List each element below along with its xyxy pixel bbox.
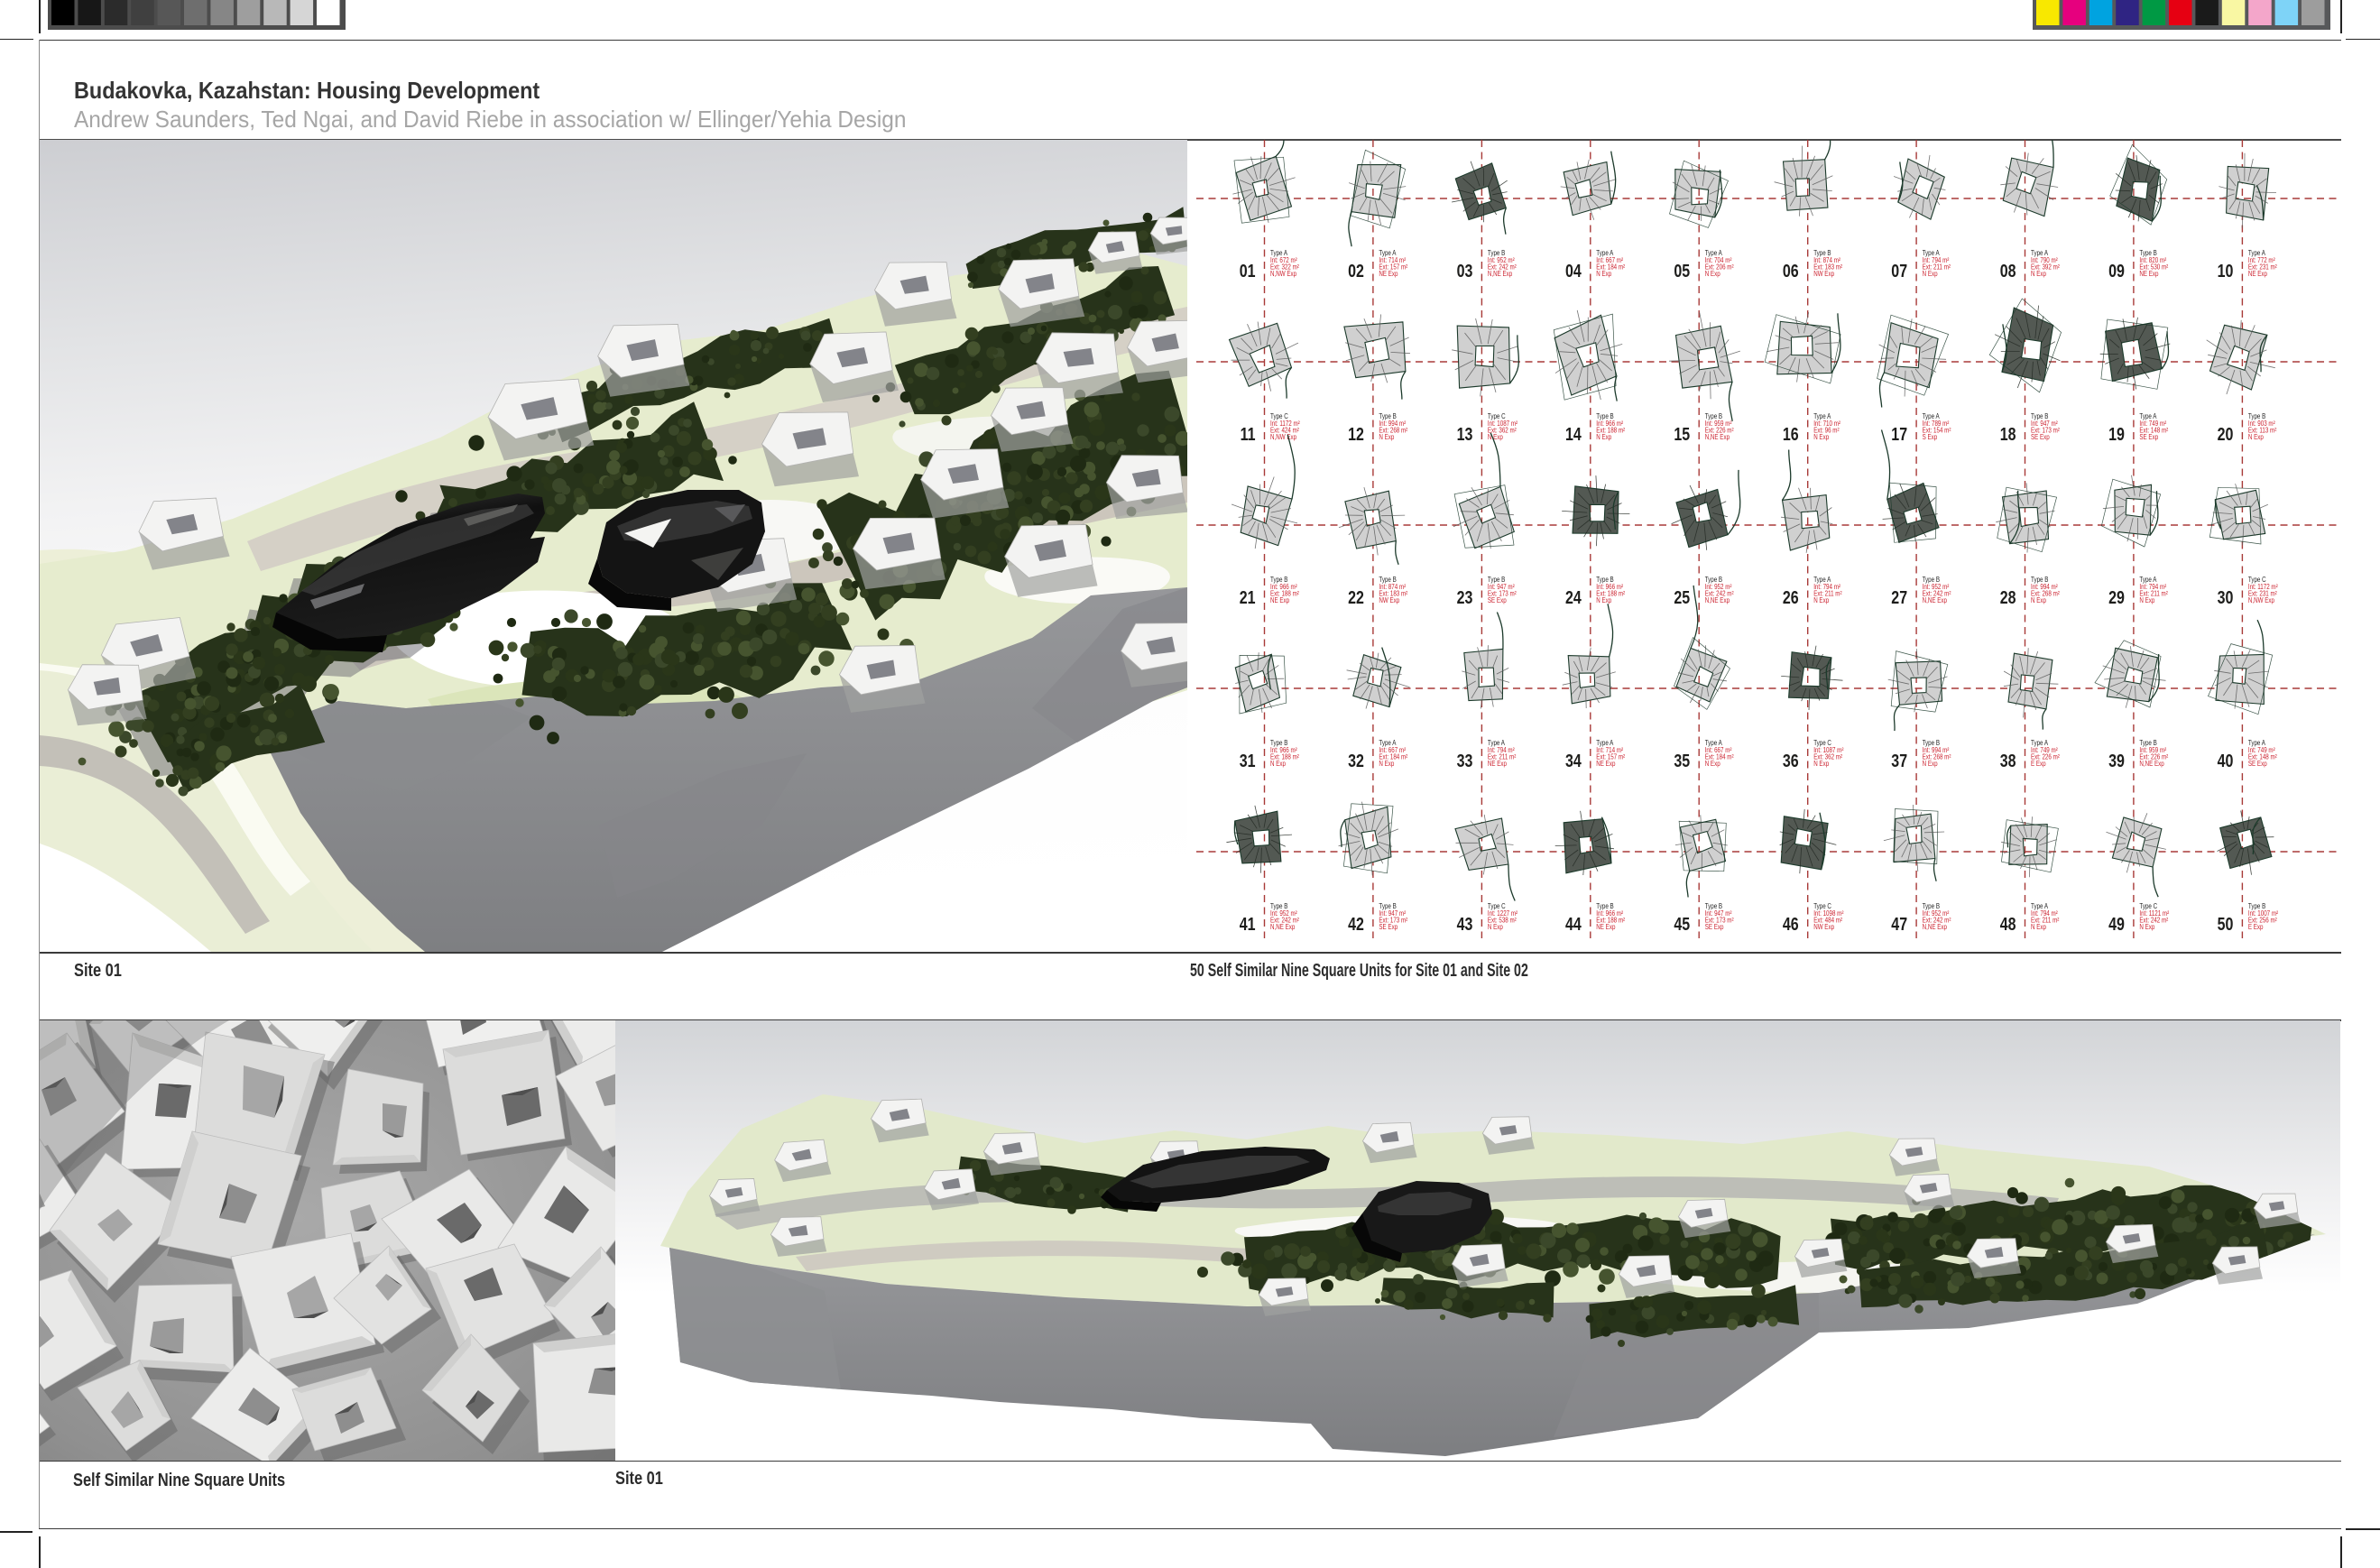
svg-text:Ext: 211 m²: Ext: 211 m² [2139,591,2168,598]
svg-text:SE Exp: SE Exp [1379,925,1398,932]
svg-text:Ext: 268 m²: Ext: 268 m² [1923,754,1951,761]
svg-text:Int: 749 m²: Int: 749 m² [2031,747,2058,754]
svg-text:Type B: Type B [1270,903,1288,910]
svg-text:Int: 966 m²: Int: 966 m² [1596,584,1623,591]
svg-text:Type A: Type A [1813,413,1831,420]
svg-text:N Exp: N Exp [1705,761,1720,769]
svg-text:N,NE Exp: N,NE Exp [1923,598,1947,605]
svg-text:32: 32 [1348,751,1364,770]
svg-text:N Exp: N Exp [2139,598,2154,605]
svg-text:N Exp: N Exp [1705,272,1720,279]
svg-text:Ext: 157 m²: Ext: 157 m² [1596,754,1625,761]
svg-text:N Exp: N Exp [2031,272,2046,279]
svg-text:Ext: 183 m²: Ext: 183 m² [1379,591,1407,598]
svg-text:31: 31 [1240,751,1256,770]
svg-text:NE Exp: NE Exp [1270,598,1289,605]
svg-text:Int: 1007 m²: Int: 1007 m² [2248,910,2279,918]
svg-text:Int: 1172 m²: Int: 1172 m² [1270,420,1300,428]
svg-text:SE Exp: SE Exp [1488,598,1507,605]
svg-text:N Exp: N Exp [1813,598,1829,605]
svg-text:Int: 1087 m²: Int: 1087 m² [1813,747,1844,754]
svg-text:Ext: 242 m²: Ext: 242 m² [1270,918,1299,925]
svg-text:NE Exp: NE Exp [1379,272,1398,279]
svg-text:Int: 749 m²: Int: 749 m² [2139,420,2166,428]
svg-text:NE Exp: NE Exp [1596,925,1615,932]
svg-text:N,NE Exp: N,NE Exp [1705,598,1730,605]
svg-text:Int: 952 m²: Int: 952 m² [1923,584,1950,591]
svg-text:09: 09 [2108,261,2125,281]
svg-text:10: 10 [2218,261,2234,281]
svg-text:45: 45 [1674,914,1690,934]
svg-text:Int: 820 m²: Int: 820 m² [2139,257,2166,264]
svg-text:37: 37 [1891,751,1907,770]
svg-text:30: 30 [2218,587,2234,607]
svg-text:Ext: 173 m²: Ext: 173 m² [2031,428,2060,435]
svg-text:N Exp: N Exp [2031,598,2046,605]
svg-text:22: 22 [1348,587,1364,607]
svg-text:Type C: Type C [1488,903,1506,910]
svg-text:Ext: 184 m²: Ext: 184 m² [1705,754,1734,761]
svg-text:NE Exp: NE Exp [1488,761,1507,769]
svg-text:Int: 667 m²: Int: 667 m² [1379,747,1406,754]
svg-text:NE Exp: NE Exp [2248,272,2267,279]
svg-text:Type A: Type A [1596,250,1613,257]
svg-text:41: 41 [1240,914,1256,934]
svg-text:46: 46 [1783,914,1799,934]
svg-text:42: 42 [1348,914,1364,934]
svg-text:Ext: 242 m²: Ext: 242 m² [1705,591,1734,598]
svg-text:Int: 714 m²: Int: 714 m² [1379,257,1406,264]
svg-text:Type A: Type A [1488,740,1505,747]
svg-text:N,NE Exp: N,NE Exp [1488,272,1512,279]
svg-text:SE Exp: SE Exp [2031,435,2050,442]
svg-text:18: 18 [2000,424,2016,444]
svg-text:Ext: 424 m²: Ext: 424 m² [1270,428,1299,435]
svg-text:Int: 994 m²: Int: 994 m² [1379,420,1406,428]
svg-text:Type A: Type A [2248,740,2265,747]
svg-text:Int: 952 m²: Int: 952 m² [1705,584,1732,591]
svg-text:Ext: 226 m²: Ext: 226 m² [2139,754,2168,761]
svg-text:Type C: Type C [1813,740,1831,747]
svg-text:Int: 966 m²: Int: 966 m² [1270,584,1297,591]
svg-text:50: 50 [2218,914,2234,934]
svg-text:Type A: Type A [2031,250,2048,257]
svg-text:Int: 749 m²: Int: 749 m² [2248,747,2275,754]
svg-text:Int: 794 m²: Int: 794 m² [2031,910,2058,918]
svg-text:Ext: 538 m²: Ext: 538 m² [1488,918,1517,925]
svg-text:Ext: 392 m²: Ext: 392 m² [2031,264,2060,272]
svg-text:16: 16 [1783,424,1799,444]
svg-text:NW Exp: NW Exp [1813,925,1834,932]
svg-text:N Exp: N Exp [1813,761,1829,769]
svg-text:49: 49 [2108,914,2125,934]
svg-text:Ext: 184 m²: Ext: 184 m² [1596,264,1625,272]
svg-text:Int: 874 m²: Int: 874 m² [1379,584,1406,591]
svg-text:Ext: 188 m²: Ext: 188 m² [1596,918,1625,925]
svg-text:Ext: 211 m²: Ext: 211 m² [1488,754,1517,761]
svg-text:Type B: Type B [1923,576,1941,584]
svg-text:Type B: Type B [1379,903,1397,910]
svg-text:40: 40 [2218,751,2234,770]
svg-text:Type C: Type C [2139,903,2157,910]
svg-text:Ext: 242 m²: Ext: 242 m² [2139,918,2168,925]
svg-text:Int: 959 m²: Int: 959 m² [2139,747,2166,754]
svg-text:Int: 1087 m²: Int: 1087 m² [1488,420,1518,428]
svg-text:04: 04 [1565,261,1582,281]
svg-text:Type B: Type B [1705,576,1723,584]
svg-text:Type B: Type B [2139,250,2157,257]
svg-text:N Exp: N Exp [1923,272,1938,279]
svg-text:Type B: Type B [1379,413,1397,420]
svg-text:Type C: Type C [1270,413,1288,420]
svg-text:Ext: 530 m²: Ext: 530 m² [2139,264,2168,272]
svg-text:Type B: Type B [1596,413,1614,420]
svg-text:Type B: Type B [1488,250,1506,257]
svg-text:Int: 667 m²: Int: 667 m² [1596,257,1623,264]
svg-text:Int: 952 m²: Int: 952 m² [1923,910,1950,918]
svg-text:48: 48 [2000,914,2016,934]
svg-text:43: 43 [1457,914,1473,934]
svg-text:Ext: 184 m²: Ext: 184 m² [1379,754,1407,761]
svg-text:Ext: 322 m²: Ext: 322 m² [1270,264,1299,272]
svg-text:15: 15 [1674,424,1690,444]
svg-text:Int: 772 m²: Int: 772 m² [2248,257,2275,264]
svg-text:NE Exp: NE Exp [1596,761,1615,769]
svg-text:Type A: Type A [2139,576,2156,584]
svg-text:Int: 704 m²: Int: 704 m² [1705,257,1732,264]
svg-text:Ext: 484 m²: Ext: 484 m² [1813,918,1842,925]
svg-text:NW Exp: NW Exp [1379,598,1399,605]
svg-text:Type A: Type A [2248,250,2265,257]
svg-text:Type B: Type B [1270,576,1288,584]
svg-text:Int: 966 m²: Int: 966 m² [1270,747,1297,754]
svg-text:Int: 947 m²: Int: 947 m² [1379,910,1406,918]
svg-text:Type B: Type B [1923,740,1941,747]
svg-text:N,NW Exp: N,NW Exp [1270,435,1296,442]
svg-text:N Exp: N Exp [2139,925,2154,932]
svg-text:Type A: Type A [1923,413,1940,420]
svg-text:19: 19 [2108,424,2125,444]
svg-text:Ext: 188 m²: Ext: 188 m² [1270,754,1299,761]
svg-text:21: 21 [1240,587,1256,607]
svg-text:Type A: Type A [1705,740,1722,747]
svg-text:Ext: 231 m²: Ext: 231 m² [2248,264,2277,272]
svg-text:Int: 952 m²: Int: 952 m² [1270,910,1297,918]
svg-text:Int: 947 m²: Int: 947 m² [2031,420,2058,428]
svg-text:Type B: Type B [1923,903,1941,910]
svg-text:Type C: Type C [2248,576,2266,584]
svg-text:Int: 789 m²: Int: 789 m² [1923,420,1950,428]
svg-text:Type A: Type A [2139,413,2156,420]
svg-text:Ext: 268 m²: Ext: 268 m² [1379,428,1407,435]
svg-text:N,NE Exp: N,NE Exp [2139,761,2163,769]
svg-text:Ext: 154 m²: Ext: 154 m² [1923,428,1951,435]
svg-text:N,NE Exp: N,NE Exp [1705,435,1730,442]
svg-text:Int: 672 m²: Int: 672 m² [1270,257,1297,264]
svg-text:39: 39 [2108,751,2125,770]
svg-text:N Exp: N Exp [1813,435,1829,442]
svg-text:Ext: 211 m²: Ext: 211 m² [1813,591,1842,598]
svg-text:Type A: Type A [1379,740,1396,747]
svg-text:Ext: 173 m²: Ext: 173 m² [1705,918,1734,925]
svg-text:Ext: 157 m²: Ext: 157 m² [1379,264,1407,272]
svg-text:Int: 952 m²: Int: 952 m² [1488,257,1515,264]
svg-text:38: 38 [2000,751,2016,770]
svg-text:N Exp: N Exp [1596,272,1611,279]
svg-text:Ext: 226 m²: Ext: 226 m² [2031,754,2060,761]
svg-text:14: 14 [1565,424,1582,444]
svg-text:Ext: 148 m²: Ext: 148 m² [2139,428,2168,435]
svg-text:Int: 794 m²: Int: 794 m² [1923,257,1950,264]
svg-text:N Exp: N Exp [1596,435,1611,442]
svg-text:N Exp: N Exp [1596,598,1611,605]
svg-text:27: 27 [1891,587,1907,607]
svg-text:N Exp: N Exp [1379,761,1394,769]
svg-text:Ext: 188 m²: Ext: 188 m² [1270,591,1299,598]
svg-text:Ext: 362 m²: Ext: 362 m² [1488,428,1517,435]
svg-text:47: 47 [1891,914,1907,934]
svg-text:N,NW Exp: N,NW Exp [2248,598,2274,605]
svg-text:NE Exp: NE Exp [2139,272,2158,279]
svg-text:N Exp: N Exp [2031,925,2046,932]
svg-text:SE Exp: SE Exp [2248,761,2267,769]
svg-text:Int: 966 m²: Int: 966 m² [1596,420,1623,428]
svg-text:Type B: Type B [2248,903,2266,910]
svg-text:N,NW Exp: N,NW Exp [1270,272,1296,279]
svg-text:Int: 710 m²: Int: 710 m² [1813,420,1840,428]
svg-text:23: 23 [1457,587,1473,607]
svg-text:Int: 966 m²: Int: 966 m² [1596,910,1623,918]
svg-text:Ext: 206 m²: Ext: 206 m² [1705,264,1734,272]
svg-text:Type A: Type A [2031,903,2048,910]
svg-text:Ext: 256 m²: Ext: 256 m² [2248,918,2277,925]
svg-text:Type A: Type A [1705,250,1722,257]
svg-text:Int: 794 m²: Int: 794 m² [1488,747,1515,754]
svg-text:Ext: 188 m²: Ext: 188 m² [1596,591,1625,598]
svg-text:N,NE Exp: N,NE Exp [1270,925,1295,932]
svg-text:29: 29 [2108,587,2125,607]
svg-text:28: 28 [2000,587,2016,607]
svg-text:N Exp: N Exp [1379,435,1394,442]
svg-text:06: 06 [1783,261,1799,281]
svg-text:E Exp: E Exp [2031,761,2046,769]
svg-text:Ext: 211 m²: Ext: 211 m² [1923,264,1951,272]
svg-text:07: 07 [1891,261,1907,281]
svg-text:Type B: Type B [2031,576,2049,584]
svg-text:Type B: Type B [2031,413,2049,420]
svg-text:Ext: 183 m²: Ext: 183 m² [1813,264,1842,272]
svg-text:Ext: 188 m²: Ext: 188 m² [1596,428,1625,435]
svg-text:Int: 790 m²: Int: 790 m² [2031,257,2058,264]
svg-text:Type A: Type A [1270,250,1287,257]
svg-text:NW Exp: NW Exp [1813,272,1834,279]
svg-text:20: 20 [2218,424,2234,444]
svg-text:Type B: Type B [1379,576,1397,584]
svg-text:33: 33 [1457,751,1473,770]
svg-text:Type B: Type B [1705,413,1723,420]
svg-text:Type B: Type B [2248,413,2266,420]
svg-text:E Exp: E Exp [2248,925,2264,932]
svg-text:Type B: Type B [1813,250,1831,257]
svg-text:17: 17 [1891,424,1907,444]
svg-text:Type A: Type A [1923,250,1940,257]
svg-text:Ext: 113 m²: Ext: 113 m² [2248,428,2277,435]
svg-text:N Exp: N Exp [2248,435,2264,442]
svg-text:Ext: 148 m²: Ext: 148 m² [2248,754,2277,761]
svg-text:Type A: Type A [2031,740,2048,747]
svg-text:35: 35 [1674,751,1690,770]
svg-text:Type B: Type B [2139,740,2157,747]
svg-text:24: 24 [1565,587,1582,607]
svg-text:Type A: Type A [1379,250,1396,257]
svg-text:N Exp: N Exp [1923,761,1938,769]
svg-text:SE Exp: SE Exp [2139,435,2158,442]
svg-text:26: 26 [1783,587,1799,607]
svg-text:36: 36 [1783,751,1799,770]
svg-text:Ext: 242 m²: Ext: 242 m² [1923,918,1951,925]
svg-text:Ext: 268 m²: Ext: 268 m² [2031,591,2060,598]
svg-text:Type A: Type A [1813,576,1831,584]
svg-text:Int: 1227 m²: Int: 1227 m² [1488,910,1518,918]
svg-text:Ext: 226 m²: Ext: 226 m² [1705,428,1734,435]
svg-text:Int: 667 m²: Int: 667 m² [1705,747,1732,754]
svg-text:Int: 794 m²: Int: 794 m² [1813,584,1840,591]
svg-text:Int: 1121 m²: Int: 1121 m² [2139,910,2169,918]
svg-text:Int: 994 m²: Int: 994 m² [2031,584,2058,591]
svg-text:Int: 714 m²: Int: 714 m² [1596,747,1623,754]
svg-text:13: 13 [1457,424,1473,444]
svg-text:Ext: 173 m²: Ext: 173 m² [1379,918,1407,925]
svg-text:12: 12 [1348,424,1364,444]
svg-text:Type A: Type A [1596,740,1613,747]
svg-text:Type C: Type C [1813,903,1831,910]
svg-text:Int: 1098 m²: Int: 1098 m² [1813,910,1844,918]
svg-text:Int: 874 m²: Int: 874 m² [1813,257,1840,264]
svg-text:Type C: Type C [1488,413,1506,420]
svg-text:44: 44 [1565,914,1582,934]
svg-text:02: 02 [1348,261,1364,281]
svg-text:Ext: 242 m²: Ext: 242 m² [1488,264,1517,272]
svg-text:Int: 794 m²: Int: 794 m² [2139,584,2166,591]
svg-text:11: 11 [1241,424,1256,444]
svg-text:SE Exp: SE Exp [1705,925,1724,932]
svg-text:Type B: Type B [1705,903,1723,910]
svg-text:34: 34 [1565,751,1582,770]
svg-text:Ext: 96 m²: Ext: 96 m² [1813,428,1840,435]
svg-text:Int: 994 m²: Int: 994 m² [1923,747,1950,754]
svg-text:Type B: Type B [1596,903,1614,910]
svg-text:05: 05 [1674,261,1690,281]
svg-text:Int: 903 m²: Int: 903 m² [2248,420,2275,428]
svg-text:01: 01 [1240,261,1256,281]
svg-text:N Exp: N Exp [1488,925,1503,932]
svg-text:Int: 1172 m²: Int: 1172 m² [2248,584,2278,591]
svg-text:Type B: Type B [1270,740,1288,747]
svg-text:N,NE Exp: N,NE Exp [1923,925,1947,932]
svg-text:S Exp: S Exp [1923,435,1938,442]
svg-text:Int: 959 m²: Int: 959 m² [1705,420,1732,428]
svg-text:Ext: 242 m²: Ext: 242 m² [1923,591,1951,598]
svg-text:25: 25 [1674,587,1690,607]
svg-text:N Exp: N Exp [1270,761,1286,769]
svg-text:Type B: Type B [1596,576,1614,584]
svg-text:Type B: Type B [1488,576,1506,584]
svg-text:Int: 947 m²: Int: 947 m² [1705,910,1732,918]
svg-text:08: 08 [2000,261,2016,281]
svg-text:Ext: 211 m²: Ext: 211 m² [2031,918,2060,925]
svg-text:Int: 947 m²: Int: 947 m² [1488,584,1515,591]
svg-text:N Exp: N Exp [1488,435,1503,442]
svg-text:Ext: 173 m²: Ext: 173 m² [1488,591,1517,598]
svg-text:03: 03 [1457,261,1473,281]
svg-text:Ext: 231 m²: Ext: 231 m² [2248,591,2277,598]
svg-text:Ext: 362 m²: Ext: 362 m² [1813,754,1842,761]
